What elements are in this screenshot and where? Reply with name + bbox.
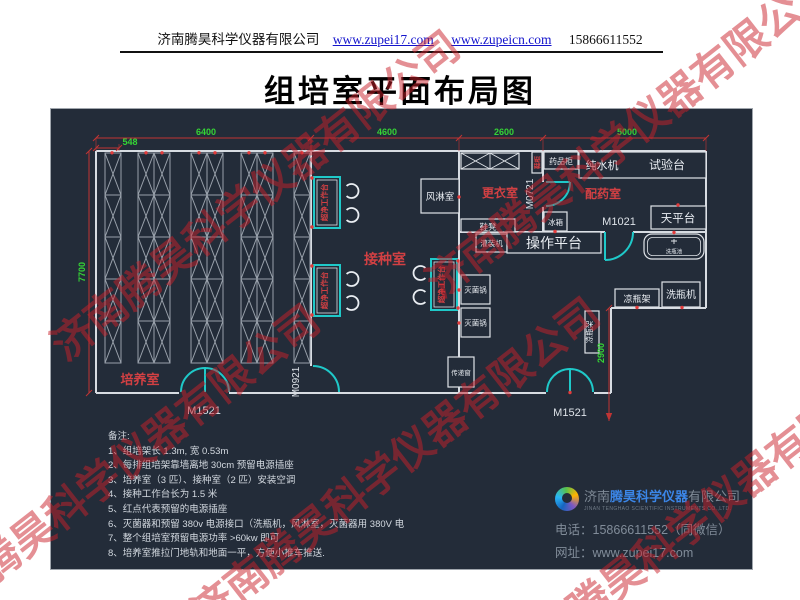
shoe-cabinet-label: 鞋柜: [533, 156, 542, 170]
dim-2600: 2600: [494, 127, 514, 137]
note-item-5: 5、红点代表预留的电源插座: [108, 503, 404, 518]
footer-phone-line: 电话：15866611552（同微信）: [555, 519, 740, 538]
footer-contact: 济南腾昊科学仪器有限公司 JINAN TENGHAO SCIENTIFIC IN…: [555, 486, 740, 561]
medicine-cabinet-label: 药品柜: [549, 156, 573, 166]
room-pharmacy: 配药室: [585, 186, 621, 201]
door-labels: M1521 M1521 M0921 M0721 M1021: [187, 178, 636, 419]
clean-bench-label-1: 超净工作台: [319, 183, 329, 222]
sterilizer-label-1: 灭菌锅: [464, 285, 487, 295]
dim-2900: 2900: [596, 343, 606, 363]
balance-table-label: 天平台: [661, 211, 696, 225]
note-item-3: 3、培养室（3 匹）、接种室（2 匹）安装空调: [108, 474, 404, 489]
operation-platform-label: 操作平台: [526, 235, 582, 251]
dim-6400: 6400: [196, 127, 216, 137]
company-logo: [555, 487, 579, 511]
filling-machine-label: 灌装机: [480, 238, 503, 248]
room-inoculation: 接种室: [364, 251, 406, 267]
footer-web-label: 网址：: [555, 546, 593, 560]
test-bench-label: 试验台: [649, 157, 685, 172]
header-phone: 15866611552: [569, 32, 643, 47]
footer-phone-label: 电话：: [555, 523, 593, 537]
note-item-1: 1、组培架长 1.3m, 宽 0.53m: [108, 445, 404, 460]
cooling-rack-v-label: 凉瓶架: [584, 320, 594, 343]
water-purifier-label: 纯水机: [586, 158, 619, 172]
cad-panel: 548 6400 4600 2600 5000 7700 2900 培养室 接种…: [50, 108, 753, 570]
notes-heading: 备注:: [108, 430, 404, 445]
footer-web: www.zupei17.com: [593, 546, 694, 560]
room-changing: 更衣室: [482, 185, 518, 200]
pass-window-label: 传递窗: [451, 368, 471, 377]
note-item-6: 6、灭菌器和预留 380v 电源接口（洗瓶机，风淋室，灭菌器用 380V 电: [108, 518, 404, 533]
footer-company-prefix: 济南: [584, 489, 610, 504]
dim-4600: 4600: [377, 127, 397, 137]
note-item-8: 8、培养室推拉门地轨和地面一平，方便小推车推送.: [108, 547, 404, 562]
door-m1521-right: M1521: [553, 407, 587, 419]
note-item-4: 4、接种工作台长为 1.5 米: [108, 488, 404, 503]
cooling-rack-h-label: 凉瓶架: [623, 293, 650, 304]
page: 济南腾昊科学仪器有限公司 www.zupei17.com www.zupeicn…: [0, 0, 800, 600]
footer-phone: 15866611552（同微信）: [593, 523, 731, 537]
equipment-boxes: [421, 152, 706, 387]
footer-web-line: 网址：www.zupei17.com: [555, 542, 740, 561]
note-item-2: 2、每排组培架靠墙离地 30cm 预留电源插座: [108, 459, 404, 474]
footer-company-suffix: 有限公司: [688, 489, 740, 504]
door-m0921: M0921: [291, 366, 302, 397]
footer-company-name: 济南腾昊科学仪器有限公司: [584, 486, 740, 505]
header-link-zupeicn[interactable]: www.zupeicn.com: [451, 32, 551, 47]
bottle-washer-label: 洗瓶机: [666, 288, 696, 301]
dim-7700: 7700: [77, 262, 87, 282]
dim-5000: 5000: [617, 127, 637, 137]
header-link-zupei17[interactable]: www.zupei17.com: [333, 32, 434, 47]
header: 济南腾昊科学仪器有限公司 www.zupei17.com www.zupeicn…: [0, 28, 800, 48]
page-title: 组培室平面布局图: [0, 66, 800, 111]
culture-racks: [105, 153, 310, 363]
room-culture: 培养室: [120, 372, 159, 387]
door-m1521-left: M1521: [187, 405, 221, 417]
clean-bench-label-3: 超净工作台: [436, 265, 446, 304]
header-rule: [120, 51, 663, 53]
notes-block: 备注: 1、组培架长 1.3m, 宽 0.53m 2、每排组培架靠墙离地 30c…: [108, 430, 404, 561]
footer-company-en: JINAN TENGHAO SCIENTIFIC INSTRUMENTS CO.…: [584, 506, 740, 512]
sterilizer-label-2: 灭菌锅: [464, 318, 487, 328]
air-shower-label: 风淋室: [426, 191, 455, 203]
door-m1021: M1021: [602, 216, 636, 228]
bottle-sink-label: 洗瓶池: [666, 248, 683, 256]
door-m0721: M0721: [525, 178, 536, 209]
equipment-labels: 风淋室 药品柜 纯水机 试验台 天平台 洗瓶池 冰箱 鞋凳 灌装机 操作平台 灭…: [426, 156, 696, 377]
stools: [347, 184, 426, 310]
note-item-7: 7、整个组培室预留电源功率 >60kw 即可: [108, 532, 404, 547]
clean-bench-label-2: 超净工作台: [319, 271, 329, 310]
fridge-label: 冰箱: [548, 217, 563, 227]
footer-company-brand: 腾昊科学仪器: [610, 489, 688, 504]
header-company: 济南腾昊科学仪器有限公司: [157, 32, 319, 47]
dim-548: 548: [122, 137, 137, 147]
shoe-bench-label: 鞋凳: [479, 222, 497, 232]
